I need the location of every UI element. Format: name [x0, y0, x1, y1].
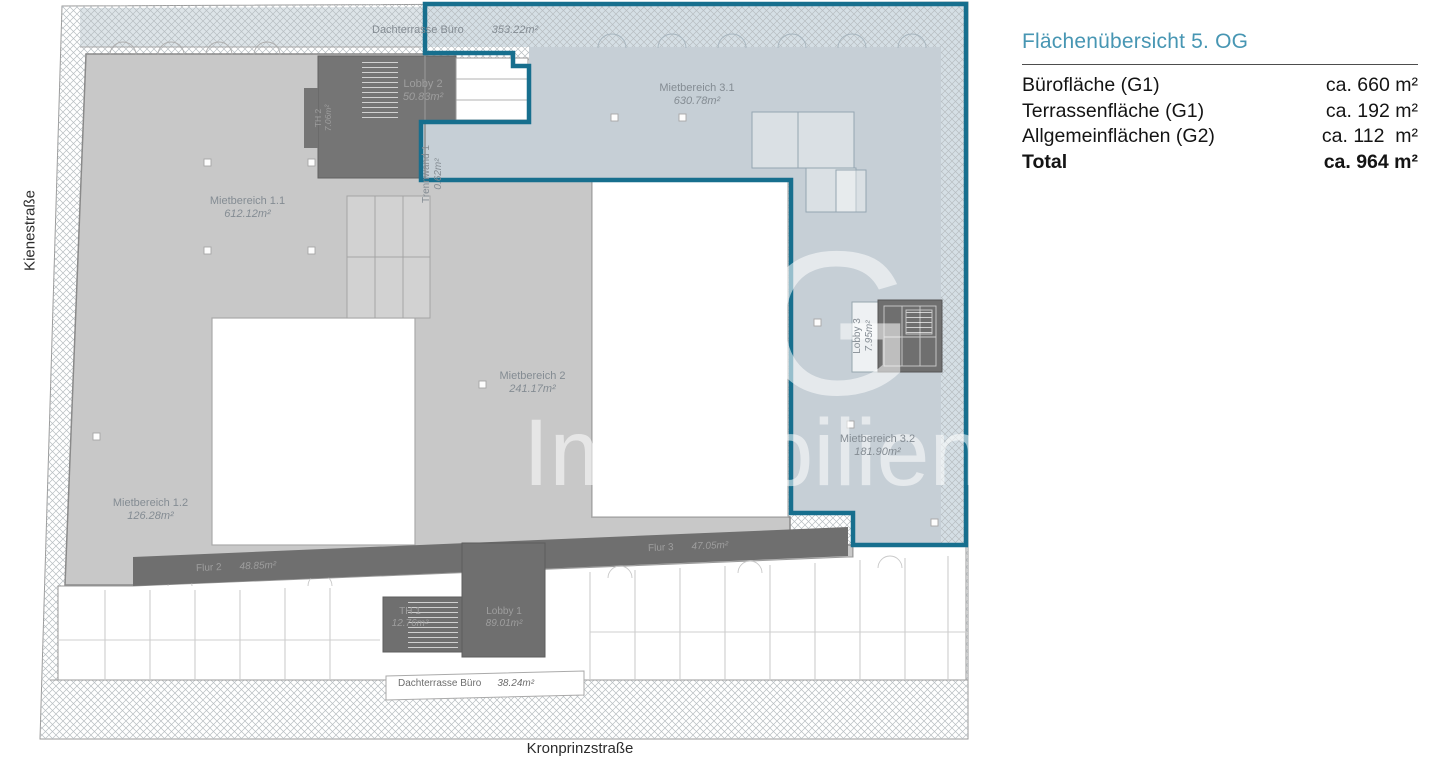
- page: HG Immobilien Dachterrasse Büro 353.22m²…: [0, 0, 1432, 772]
- title-divider: [1022, 64, 1418, 65]
- lobby-1-block: [462, 543, 545, 657]
- lobby-3-strip: [852, 302, 878, 372]
- summary-row-total: Total ca. 964 m²: [1022, 150, 1418, 176]
- courtyard-right: [592, 180, 788, 517]
- terrace-right-hatch: [941, 47, 966, 545]
- th1-stair-treads: [408, 600, 458, 648]
- summary-row-buroflaeche: Bürofläche (G1) ca. 660 m²: [1022, 73, 1418, 99]
- summary-row-terrassenflaeche: Terrassenfläche (G1) ca. 192 m²: [1022, 99, 1418, 125]
- floor-plan: HG Immobilien Dachterrasse Büro 353.22m²…: [0, 0, 1010, 772]
- summary-row-allgemeinflaechen: Allgemeinflächen (G2) ca. 112 m²: [1022, 124, 1418, 150]
- courtyard-left: [212, 318, 415, 545]
- panel-title: Flächenübersicht 5. OG: [1022, 30, 1418, 54]
- floor-plan-drawing: [0, 0, 1010, 772]
- area-summary-panel: Flächenübersicht 5. OG Bürofläche (G1) c…: [1022, 30, 1418, 175]
- lobby2-stair-treads: [362, 60, 398, 118]
- terrace-bottom-label-box: [386, 671, 584, 700]
- stairwell-th2-block: [304, 88, 318, 148]
